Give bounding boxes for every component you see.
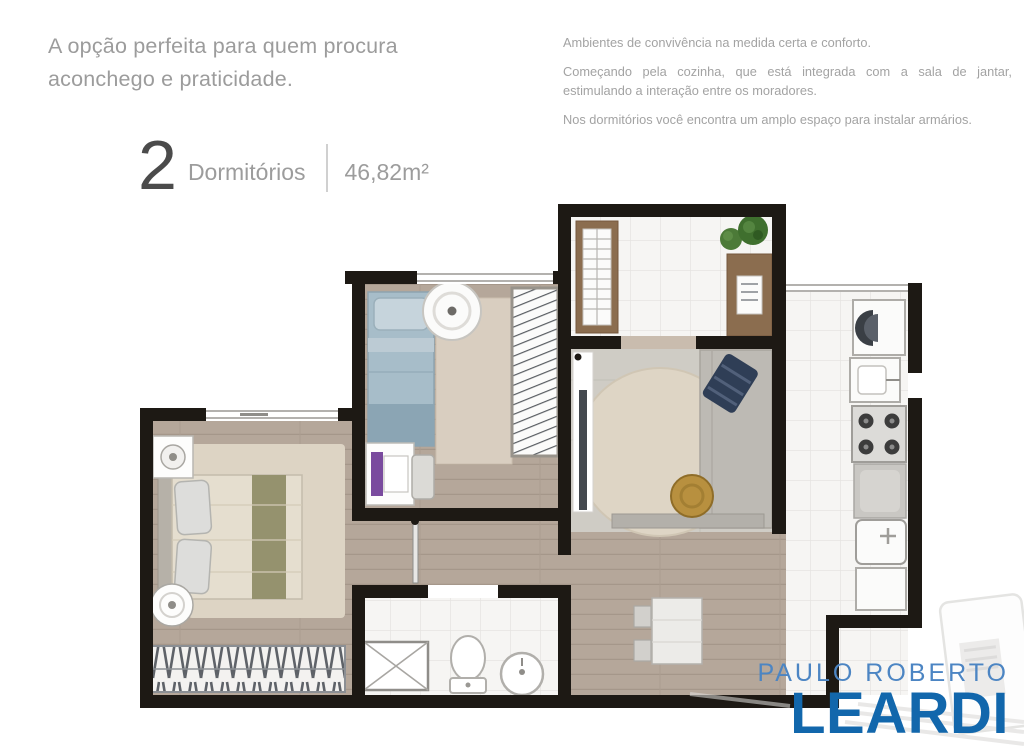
round-bedside-table [423,282,481,340]
shower-box [364,642,428,690]
washer [853,300,905,355]
round-side-table [151,584,193,626]
double-bed [158,473,302,601]
base-cabinet [856,568,906,610]
round-sink [501,653,543,695]
desk-chair [412,455,434,499]
striped-rug [152,646,345,692]
dining-chair [634,606,651,627]
service-cabinet [727,254,772,336]
logo-name-bottom: LEARDI [757,688,1009,740]
dining-chair [634,640,651,661]
toilet [450,636,486,693]
stove [852,406,906,462]
pillow [174,480,212,535]
wall-recess [908,373,922,398]
nightstand-with-lamp [153,436,193,478]
pillow [374,298,428,330]
kitchen-sink [850,358,900,402]
floor-hallway [352,521,571,585]
window-master-bedroom [206,408,338,421]
window-kitchen [786,285,908,291]
kitchen-counter [854,464,906,518]
floor-plan [0,0,1024,748]
wardrobe [512,288,558,456]
service-doorway-threshold [621,336,696,349]
window-bedroom-2 [417,271,553,284]
entry-door [573,352,593,512]
drying-rack [576,221,618,333]
purple-object [371,452,383,496]
gold-ottoman [671,475,713,517]
fridge [856,520,906,564]
realtor-logo: PAULO ROBERTO LEARDI [757,659,1009,740]
